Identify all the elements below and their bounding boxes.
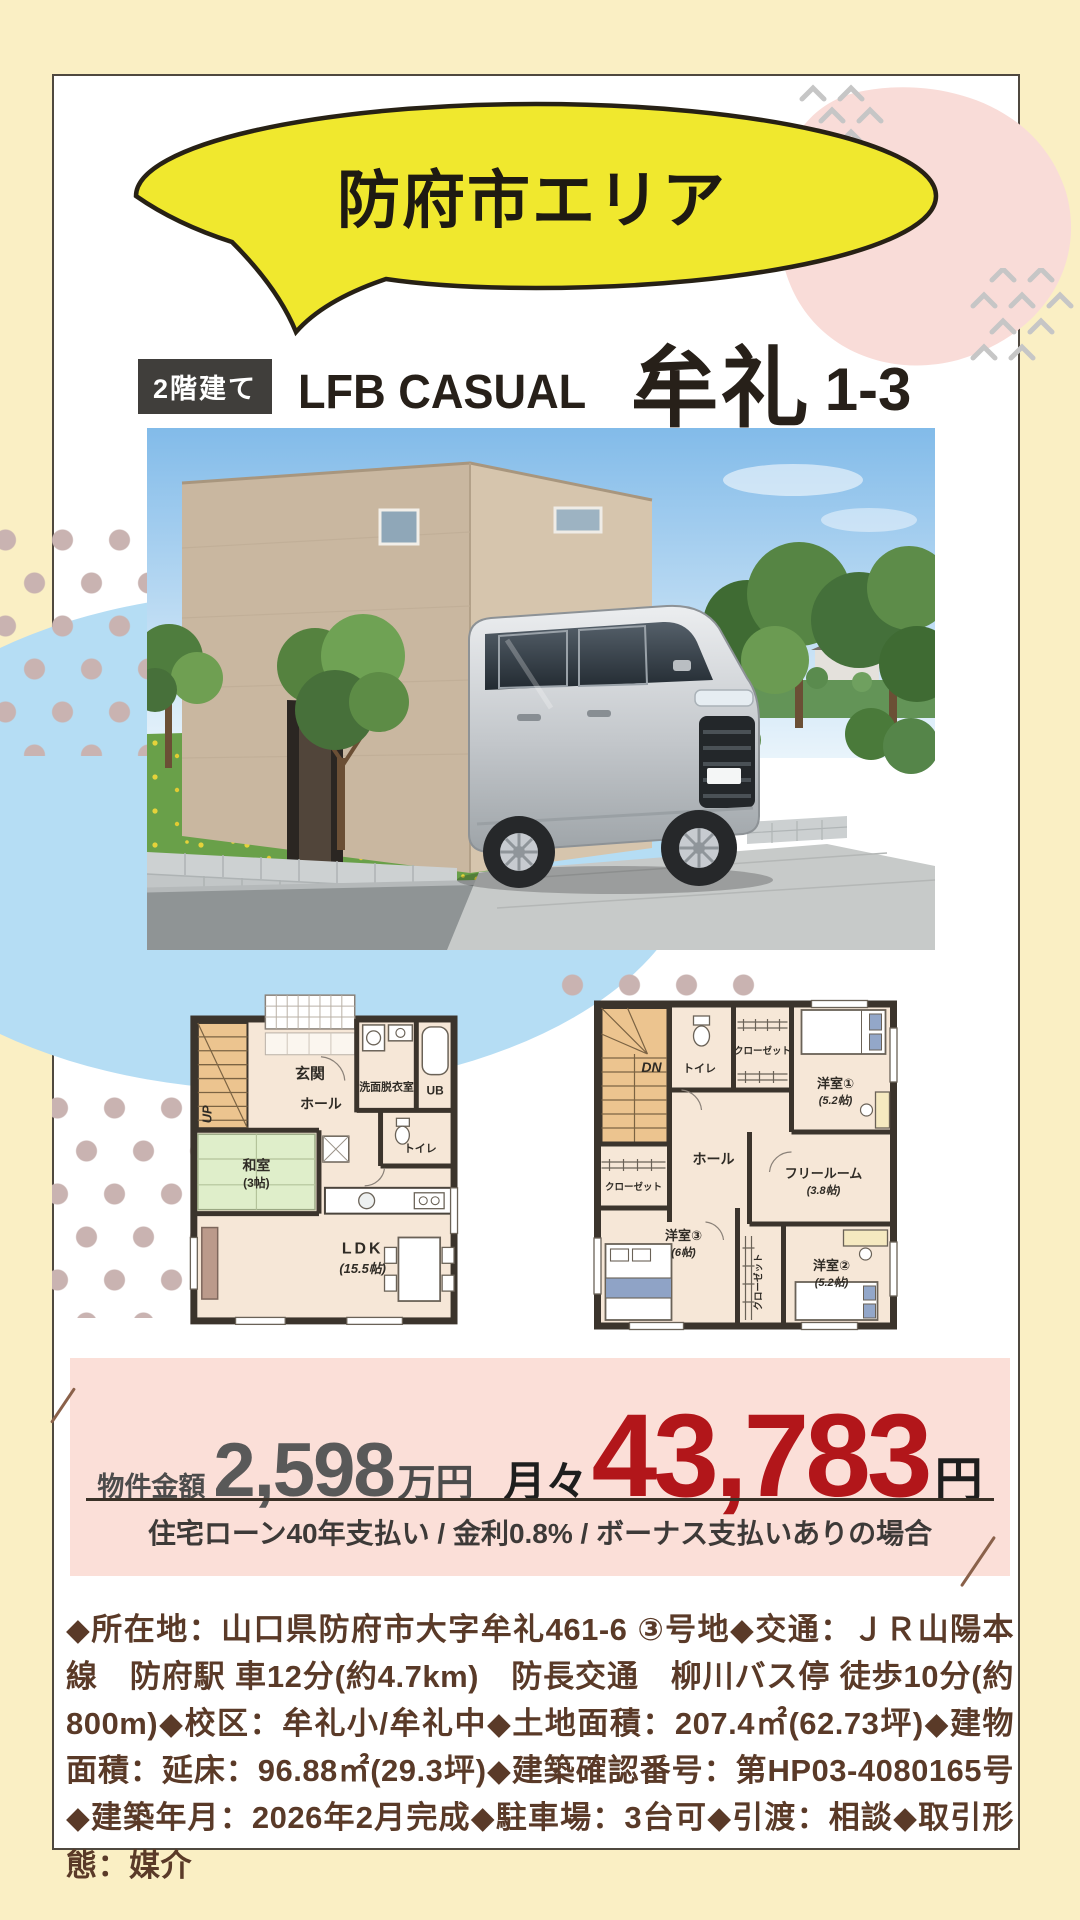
washer-icon: [363, 1025, 385, 1051]
entrance-porch: [265, 995, 354, 1055]
staircase-down-icon: [602, 1008, 668, 1144]
bed-icon: [802, 1010, 886, 1054]
closet-mid-label: クローゼット: [605, 1181, 662, 1193]
brand-name: LFB CASUAL: [298, 365, 586, 420]
toilet-icon: [694, 1016, 710, 1046]
price-underline: [86, 1498, 994, 1501]
toilet-icon: [395, 1118, 409, 1144]
fridge-icon: [323, 1136, 349, 1162]
monthly-amount: 43,783: [592, 1388, 929, 1524]
cloud: [821, 508, 917, 532]
property-name: 牟礼: [631, 349, 811, 428]
dot-pattern-center: [536, 954, 788, 996]
house-photo: [147, 428, 935, 950]
bed-icon: [606, 1244, 672, 1320]
toilet-label: トイレ: [404, 1142, 437, 1155]
property-details-text: ◆所在地：山口県防府市大字牟礼461-6 ③号地◆交通：ＪＲ山陽本線 防府駅 車…: [66, 1606, 1014, 1889]
bedroom1-size: (5.2帖): [819, 1094, 853, 1107]
ub-label: UB: [427, 1083, 445, 1097]
house-window: [380, 510, 418, 544]
toilet-label: トイレ: [683, 1062, 716, 1075]
bedroom3-size: (6帖): [671, 1246, 696, 1259]
vanity-icon: [388, 1025, 412, 1041]
property-title-row: 2階建て LFB CASUAL 牟礼 1-3: [138, 338, 911, 424]
area-speech-bubble: 防府市エリア: [128, 92, 944, 344]
washitsu-label: 和室: [243, 1157, 271, 1173]
washitsu-size: (3帖): [243, 1176, 269, 1190]
stories-badge: 2階建て: [138, 359, 272, 414]
lot-number: 1-3: [825, 355, 912, 424]
tv-board-icon: [202, 1228, 218, 1300]
free-room-size: (3.8帖): [807, 1184, 841, 1197]
hall-label: ホール: [300, 1095, 342, 1111]
stairs-label: DN: [641, 1059, 662, 1075]
hall-label: ホール: [693, 1151, 735, 1167]
chevron-pattern-right: [966, 268, 1078, 366]
price-banner: 物件金額 2,598 万円 月々 43,783 円 住宅ローン40年支払い / …: [70, 1358, 1010, 1576]
stairs-label: UP: [200, 1105, 215, 1123]
house-window: [555, 508, 601, 532]
bathtub-icon: [422, 1027, 448, 1075]
bedroom3-label: 洋室③: [665, 1228, 702, 1243]
bedroom1-label: 洋室①: [817, 1076, 854, 1091]
ldk-label: LDK: [342, 1240, 384, 1257]
price-row: 物件金額 2,598 万円 月々 43,783 円: [70, 1388, 1010, 1524]
floor-plan-1f: UP: [172, 992, 460, 1332]
flyer-page: 防府市エリア 2階建て LFB CASUAL 牟礼 1-3: [0, 0, 1080, 1920]
loan-conditions: 住宅ローン40年支払い / 金利0.8% / ボーナス支払いありの場合: [70, 1512, 1010, 1552]
cloud: [723, 464, 863, 496]
genkan-label: 玄関: [295, 1065, 325, 1083]
bedroom2-label: 洋室②: [813, 1258, 850, 1273]
ldk-size: (15.5帖): [339, 1261, 386, 1276]
closet-bottom-label: クローゼット: [753, 1253, 765, 1310]
floor-plan-2f: DN: [583, 992, 908, 1337]
area-label: 防府市エリア: [337, 166, 727, 236]
headlight: [695, 690, 753, 706]
kitchen-counter-icon: [325, 1188, 452, 1214]
washroom-label: 洗面脱衣室: [359, 1079, 414, 1093]
closet-top-label: クローゼット: [734, 1045, 791, 1057]
license-plate: [707, 768, 741, 784]
free-room-label: フリールーム: [785, 1166, 863, 1181]
bedroom2-size: (5.2帖): [815, 1276, 849, 1289]
